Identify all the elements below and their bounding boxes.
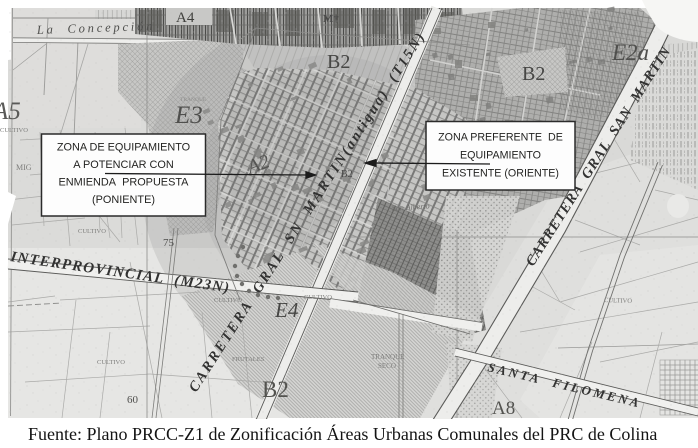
svg-text:MIG: MIG [16,163,32,172]
svg-text:B2: B2 [522,63,545,85]
svg-text:M†: M† [323,13,339,25]
svg-text:TRANQUE: TRANQUE [180,97,207,103]
svg-text:E4: E4 [274,298,299,322]
svg-text:CULTIVO: CULTIVO [304,294,332,301]
svg-text:CULTIVO: CULTIVO [0,127,28,134]
svg-text:B2: B2 [262,377,289,402]
svg-text:E3: E3 [174,102,203,129]
svg-text:60: 60 [127,394,139,406]
svg-text:E2a: E2a [611,40,649,65]
svg-text:75: 75 [163,237,175,249]
svg-text:A4: A4 [176,10,195,26]
svg-text:A5: A5 [0,98,21,125]
svg-text:CULTIVO: CULTIVO [78,228,106,235]
svg-text:FRUTALES: FRUTALES [232,356,265,363]
svg-text:CULTIVO: CULTIVO [97,359,125,366]
svg-text:A8: A8 [492,398,515,419]
svg-text:CULTIVO: CULTIVO [214,297,242,304]
svg-text:Fuente: Plano PRCC-Z1 de Zonif: Fuente: Plano PRCC-Z1 de Zonificación Ár… [28,423,657,444]
svg-text:CULTIVO: CULTIVO [604,297,632,305]
svg-text:B2: B2 [327,51,350,73]
